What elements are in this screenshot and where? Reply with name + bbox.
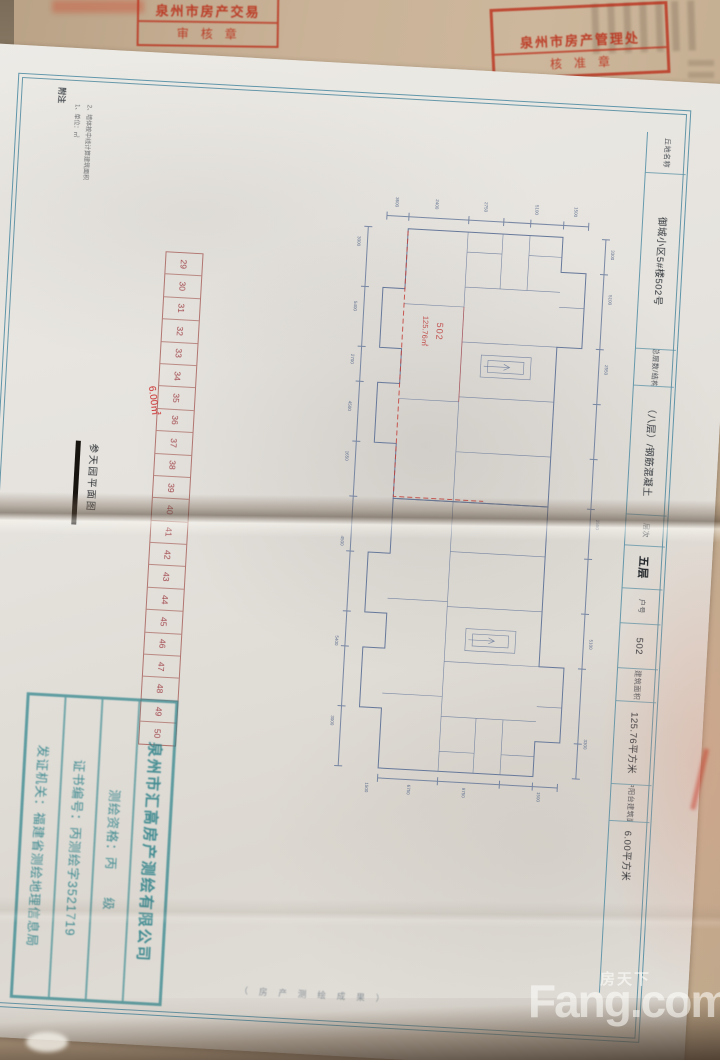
unit-grid-cell: 42 (149, 542, 186, 566)
svg-text:3300: 3300 (582, 739, 588, 750)
unit-grid-number: 33 (174, 348, 185, 358)
unit-grid-number: 42 (162, 550, 173, 560)
red-ink-smear (52, 0, 144, 13)
svg-text:5100: 5100 (534, 205, 540, 216)
title-block-cell-text: 总层数/结构 (649, 348, 661, 387)
unit-grid-number: 46 (157, 639, 168, 649)
svg-text:9750: 9750 (461, 788, 467, 799)
unit-grid-number: 47 (156, 661, 167, 671)
svg-text:5100: 5100 (588, 639, 594, 650)
unit-label: 502 (434, 322, 445, 341)
unit-grid-number: 44 (160, 594, 171, 604)
svg-text:2700: 2700 (350, 354, 356, 365)
unit-grid-number: 30 (177, 281, 188, 291)
unit-grid-cell: 32 (162, 318, 199, 342)
unit-grid-cell: 45 (145, 609, 182, 633)
svg-text:1500: 1500 (573, 207, 579, 218)
unit-grid-cell: 48 (142, 676, 179, 700)
unit-grid-number: 38 (167, 460, 178, 470)
unit-grid-cell: 43 (148, 564, 185, 588)
svg-text:1500: 1500 (364, 782, 370, 793)
note-line-2: 2、墙体按中线计算建筑面积 (81, 105, 94, 181)
unit-grid-cell: 47 (143, 654, 180, 678)
notes-title: 附注 (56, 87, 68, 104)
svg-text:3000: 3000 (356, 236, 362, 247)
unit-grid-number: 35 (171, 393, 182, 403)
svg-text:4500: 4500 (347, 401, 353, 412)
svg-text:2400: 2400 (434, 199, 440, 210)
notes-block: 附注 1、单位：㎡ 2、墙体按中线计算建筑面积 (45, 87, 113, 240)
unit-grid-cell: 35 (158, 385, 195, 409)
unit-grid-cell: 30 (164, 274, 201, 298)
red-stamp-left-subtext: 审核章 (139, 20, 277, 46)
unit-grid-cell: 38 (154, 453, 191, 477)
unit-grid-number: 39 (166, 483, 177, 493)
svg-text:3000: 3000 (329, 715, 335, 726)
svg-text:1500: 1500 (535, 792, 541, 803)
unit-grid-cell: 37 (155, 430, 192, 454)
title-block-cell-text: 丘地名称 (661, 138, 673, 169)
unit-area-label: 125.76㎡ (420, 316, 431, 347)
red-stamp-left-text: 泉州市房产交易 (139, 0, 277, 22)
unit-grid-number: 34 (172, 371, 183, 381)
unit-grid-cell: 29 (165, 252, 202, 275)
unit-grid-number: 32 (175, 326, 186, 336)
svg-text:2550: 2550 (603, 365, 609, 376)
unit-grid-cell: 33 (160, 341, 197, 365)
unit-grid-number: 31 (176, 304, 187, 314)
svg-text:1650: 1650 (344, 451, 350, 462)
svg-text:5400: 5400 (353, 301, 359, 312)
unit-grid-cell: 46 (144, 631, 181, 655)
svg-text:6750: 6750 (406, 785, 412, 796)
photo-of-survey-document: 泉州市房产交易 审核章 泉州市房产管理处 核准章 丘地名称 御城小区5#楼502… (0, 0, 720, 1060)
note-line-1: 1、单位：㎡ (72, 104, 83, 138)
unit-grid-number: 48 (155, 684, 166, 694)
title-block-cell: 丘地名称 (646, 132, 688, 174)
fang-watermark-chinese: 房天下 (600, 968, 651, 989)
surveyor-stamp: 泉州市汇高房产测绘有限公司 测绘资格：丙 级 证书编号：丙测绘字3521719 … (10, 692, 179, 1006)
white-highlight-blob (26, 1032, 68, 1052)
title-block-cell: （八层）/钢筋混凝土 (627, 385, 674, 516)
unit-grid-cell: 31 (163, 296, 200, 320)
unit-grid-cell: 34 (159, 363, 196, 387)
svg-text:5400: 5400 (334, 635, 340, 646)
fang-watermark: 房天下 Fang.com (528, 978, 720, 1024)
red-stamp-left: 泉州市房产交易 审核章 (137, 0, 280, 48)
unit-grid-number: 36 (170, 415, 181, 425)
unit-grid-number: 43 (161, 572, 172, 582)
unit-grid-number: 37 (169, 438, 180, 448)
title-block-cell-text: 御城小区5#楼502号 (651, 217, 670, 307)
unit-grid-cell: 44 (147, 587, 184, 611)
svg-text:3300: 3300 (610, 250, 616, 261)
unit-grid-number: 45 (159, 617, 170, 627)
svg-text:5100: 5100 (607, 295, 613, 306)
svg-text:3600: 3600 (394, 197, 400, 208)
svg-text:2750: 2750 (483, 202, 489, 213)
unit-grid-number: 29 (179, 259, 190, 269)
red-stamp-right: 泉州市房产管理处 核准章 (489, 1, 670, 81)
title-block-cell: 总层数/结构 (634, 348, 676, 387)
title-block-cell-text: （八层）/钢筋混凝土 (641, 404, 660, 498)
